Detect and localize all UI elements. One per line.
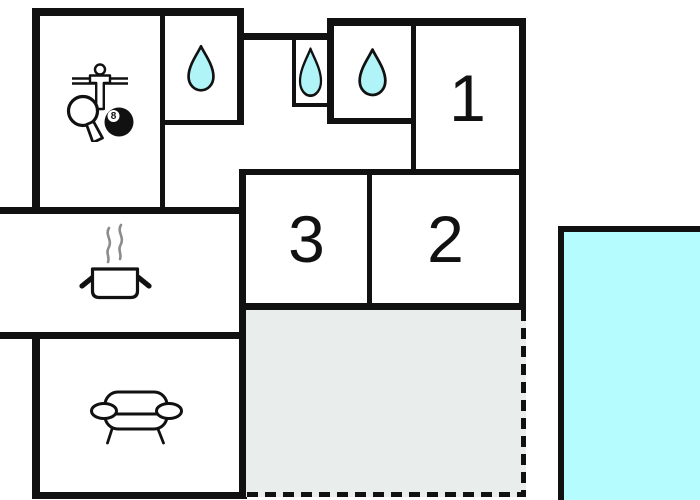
wall-bath2-bottom xyxy=(331,118,416,124)
steam-lines xyxy=(107,225,121,262)
cooking-pot-icon xyxy=(78,222,153,305)
wall-shower-left xyxy=(292,40,296,107)
pot-handle-right xyxy=(139,278,150,287)
wall-shower-bottom xyxy=(292,103,331,107)
bedroom-1-label: 1 xyxy=(416,26,519,169)
water-drop-icon xyxy=(185,42,217,95)
floor-plan: 1 3 2 xyxy=(0,0,700,500)
wall-top-left xyxy=(32,8,243,16)
sofa-leg-right xyxy=(158,429,164,443)
wall-notch-top xyxy=(237,33,334,40)
terrace-area xyxy=(246,310,526,497)
eight-ball: 8 xyxy=(105,108,134,137)
wall-right-outer xyxy=(519,18,526,310)
game-room-icon: 8 xyxy=(62,62,140,142)
pool-area xyxy=(558,226,700,500)
wall-living-bottom xyxy=(32,492,247,499)
bedroom-3-label: 3 xyxy=(246,175,367,303)
wall-bedrooms-bottom xyxy=(239,303,526,310)
terrace-dashed-border xyxy=(246,310,526,497)
wall-games-left xyxy=(32,8,40,214)
wall-bath2-left xyxy=(327,18,334,124)
eight-ball-label: 8 xyxy=(111,111,117,122)
water-drop-icon xyxy=(297,46,324,99)
wall-top-right xyxy=(327,18,526,26)
wall-kitchen-top xyxy=(0,207,246,214)
wall-bath1-right xyxy=(237,8,244,125)
pot-body xyxy=(93,269,138,298)
wall-games-bath-divider xyxy=(160,8,165,212)
sofa-arm-left xyxy=(92,404,117,419)
sofa-leg-left xyxy=(108,429,113,443)
water-drop-icon xyxy=(356,45,389,100)
wall-bath1-bottom xyxy=(160,120,244,125)
bedroom-2-label: 2 xyxy=(372,175,519,303)
sofa-icon xyxy=(88,382,188,448)
sofa-arm-right xyxy=(157,404,182,419)
wall-living-left xyxy=(32,332,40,499)
